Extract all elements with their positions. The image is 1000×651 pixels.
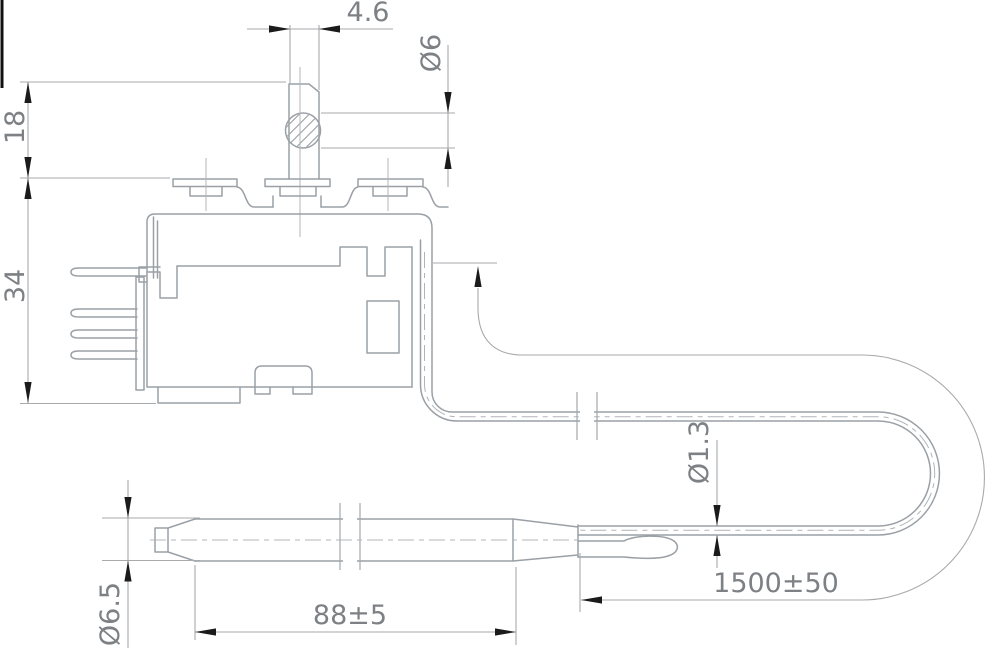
body-inner-window [367,301,399,353]
terminal-pin [71,309,137,317]
capillary-tube [421,240,935,530]
dimension-shaft-flat: 4.6 [247,0,393,90]
thermostat-body [139,214,939,535]
dimension-bulb-diameter: Ø6.5 [95,480,200,648]
body-foot [255,366,312,394]
dim-label-bulb-diameter: Ø6.5 [95,582,126,646]
bracket-right-ear [358,179,423,187]
sensor-bulb [150,503,677,570]
terminal-pin [71,351,137,359]
thermostat-drawing: 4.6 Ø6 18 34 Ø6.5 88±5 Ø1.3 [0,0,1000,651]
dim-label-stem-height: 18 [0,110,31,144]
dim-label-shaft-flat: 4.6 [347,0,390,28]
dim-label-shaft-diameter: Ø6 [416,34,447,72]
bulb-tail [578,536,677,558]
terminals [71,268,146,390]
mounting-bracket [173,158,448,211]
bracket-left-ear [173,179,237,187]
terminal-support [136,277,144,390]
dimension-bulb-length: 88±5 [195,565,516,645]
dimension-capillary-diameter: Ø1.3 [684,420,721,568]
dim-label-capillary-diameter: Ø1.3 [684,420,715,484]
technical-drawing-canvas: 4.6 Ø6 18 34 Ø6.5 88±5 Ø1.3 [0,0,1000,651]
shaft-hatching [275,84,330,179]
dim-label-capillary-length: 1500±50 [713,568,839,599]
bracket-center-plate [265,179,330,187]
dim-label-body-height: 34 [0,269,31,303]
dim-label-bulb-length: 88±5 [313,600,387,631]
terminal-pin [71,268,146,276]
dimension-stem-height: 18 34 [0,82,286,404]
shaft [275,67,330,237]
body-base-plate [158,387,240,403]
terminal-pin [71,330,137,338]
